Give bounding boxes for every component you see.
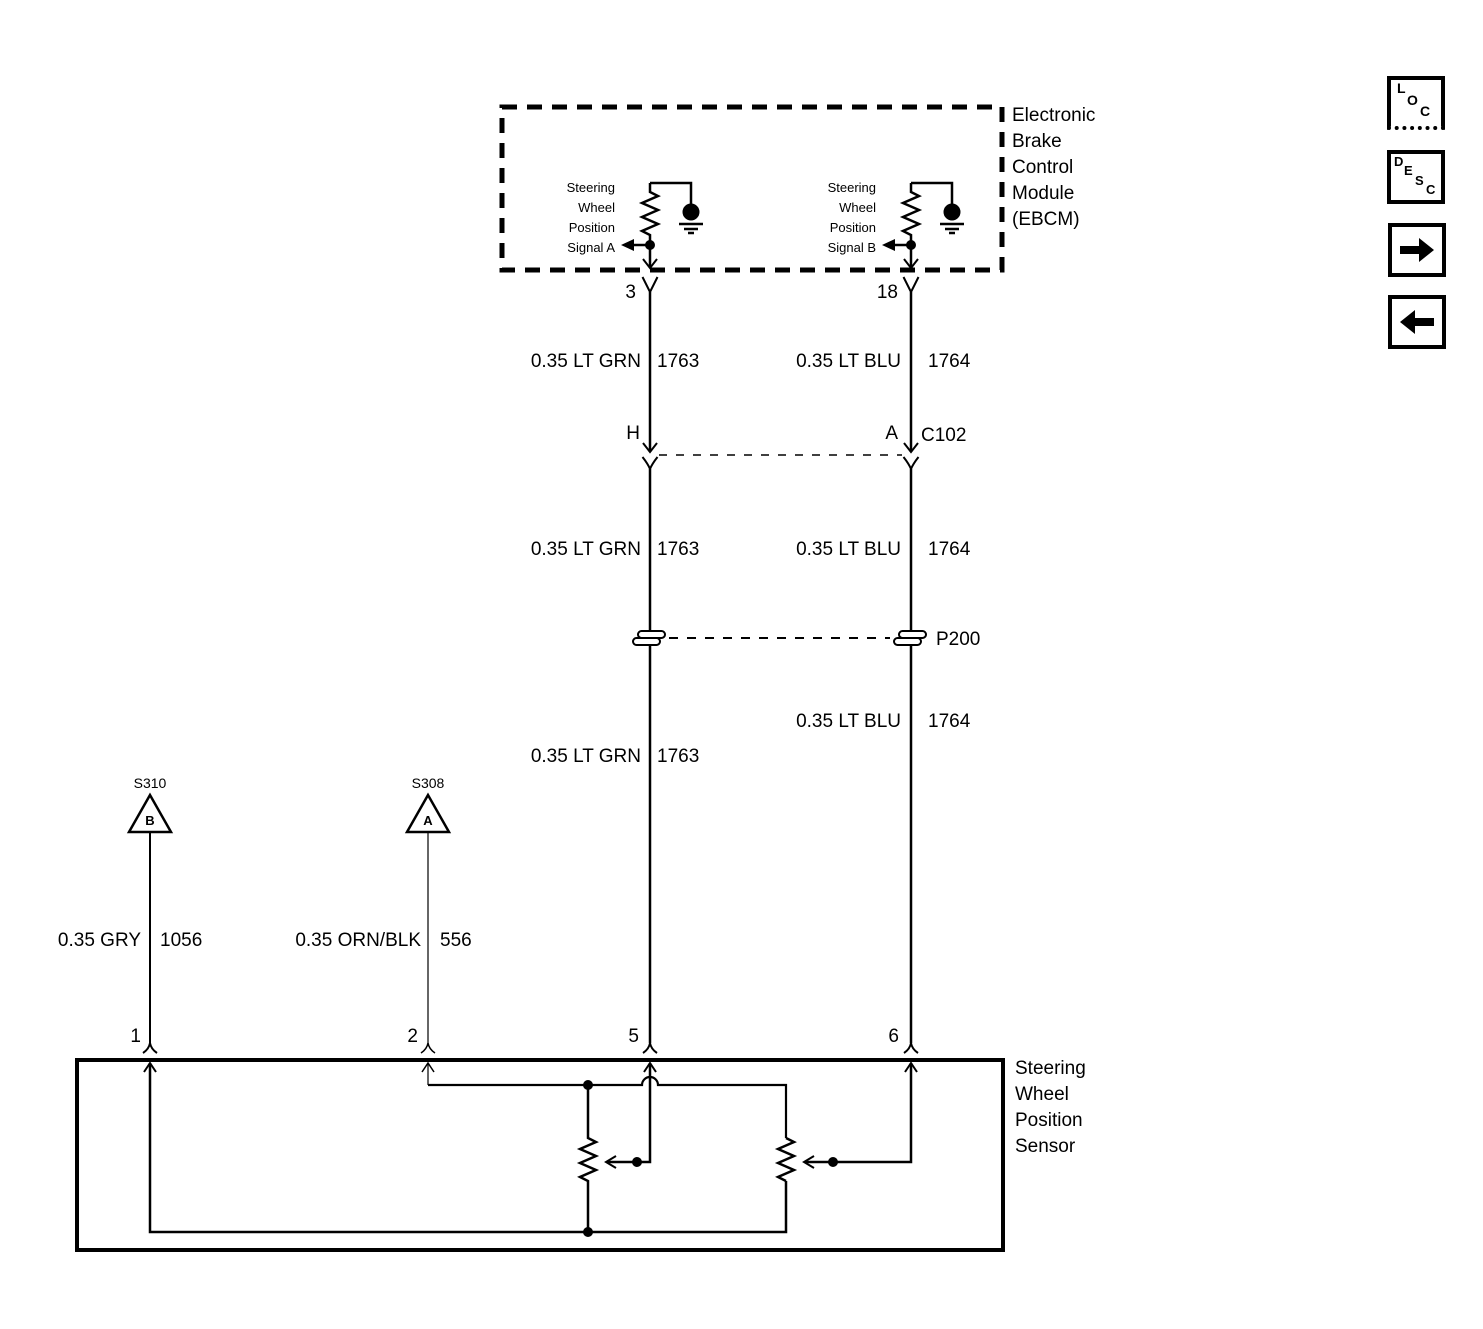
ground-icon — [679, 224, 703, 233]
right-arrow-icon — [1392, 227, 1442, 273]
sensor-box — [77, 1060, 1003, 1250]
junction-dot — [829, 1158, 838, 1167]
female-pin-fork — [643, 277, 658, 292]
ebcm-signal-a-circuit — [621, 183, 703, 268]
left-arrow-icon — [1392, 299, 1442, 345]
wire-color-label: 0.35 LT GRN — [531, 537, 641, 563]
ground-icon — [683, 204, 699, 220]
loc-letter: C — [1420, 103, 1430, 119]
wire-circuit-label: 1763 — [657, 349, 699, 375]
junction-dot — [584, 1081, 593, 1090]
ebcm-signal-b-label: Steering Wheel Position Signal B — [763, 178, 876, 258]
wire-color-label: 0.35 LT BLU — [796, 709, 901, 735]
ebcm-signal-b-circuit — [882, 183, 964, 268]
splice-s310-label: S310 — [134, 775, 167, 791]
prev-button[interactable] — [1388, 295, 1446, 349]
wire-lt-grn-1763 — [633, 277, 665, 1053]
desc-letter: E — [1404, 163, 1413, 178]
wire-color-label: 0.35 GRY — [58, 928, 141, 954]
female-pin-fork — [904, 277, 919, 292]
loc-letter: L — [1397, 80, 1406, 96]
wire-color-label: 0.35 ORN/BLK — [295, 928, 421, 954]
ebcm-pin-18: 18 — [877, 280, 898, 306]
wire-circuit-label: 1056 — [160, 928, 202, 954]
wiring-diagram — [0, 0, 1483, 1329]
ebcm-signal-a-label: Steering Wheel Position Signal A — [502, 178, 615, 258]
desc-letter: D — [1394, 154, 1403, 169]
female-pin-fork — [643, 1043, 657, 1053]
ebcm-pin-3: 3 — [625, 280, 636, 306]
junction-dot — [584, 1228, 593, 1237]
female-pin-fork — [643, 457, 658, 469]
ebcm-title: Electronic Brake Control Module (EBCM) — [1012, 103, 1095, 233]
wire-circuit-label: 1764 — [928, 537, 970, 563]
ground-icon — [940, 224, 964, 233]
signal-b-arrow — [882, 239, 895, 251]
sensor-pin-1: 1 — [130, 1024, 141, 1050]
wire-color-label: 0.35 LT BLU — [796, 537, 901, 563]
wire-circuit-label: 1764 — [928, 709, 970, 735]
p200-label: P200 — [936, 627, 980, 653]
sensor-internal-circuit — [144, 1063, 917, 1237]
c102-label: C102 — [921, 423, 966, 449]
sensor-pin-2: 2 — [407, 1024, 418, 1050]
junction-dot — [633, 1158, 642, 1167]
c102-pin-a: A — [885, 421, 898, 447]
sensor-title: Steering Wheel Position Sensor — [1015, 1056, 1086, 1160]
female-pin-fork — [421, 1043, 435, 1053]
desc-letter: C — [1426, 182, 1435, 197]
resistor — [903, 183, 919, 245]
splice-s308-letter: A — [423, 811, 432, 831]
grommet-p200-right — [894, 631, 926, 645]
resistor — [580, 1085, 596, 1232]
wire-circuit-label: 1764 — [928, 349, 970, 375]
wire-color-label: 0.35 LT GRN — [531, 349, 641, 375]
next-button[interactable] — [1388, 223, 1446, 277]
resistor — [642, 183, 658, 245]
wire-lt-blu-1764 — [894, 277, 926, 1053]
sensor-pin-5: 5 — [628, 1024, 639, 1050]
wiring-diagram-page: Electronic Brake Control Module (EBCM) S… — [0, 0, 1483, 1329]
wire-color-label: 0.35 LT GRN — [531, 744, 641, 770]
loc-letter: O — [1407, 92, 1418, 108]
splice-s310-branch — [129, 795, 171, 1053]
desc-button[interactable]: D E S C — [1387, 150, 1445, 204]
splice-s308-branch — [407, 795, 449, 1053]
resistor — [778, 1138, 794, 1181]
female-pin-fork — [904, 1043, 918, 1053]
wire-circuit-label: 1763 — [657, 537, 699, 563]
grommet-p200-left — [633, 631, 665, 645]
signal-a-arrow — [621, 239, 634, 251]
splice-s310-letter: B — [145, 811, 154, 831]
female-pin-fork — [143, 1043, 157, 1053]
ground-icon — [944, 204, 960, 220]
wire-color-label: 0.35 LT BLU — [796, 349, 901, 375]
splice-s308-label: S308 — [412, 775, 445, 791]
wire-hop — [428, 1077, 786, 1138]
desc-letter: S — [1415, 173, 1424, 188]
wire-circuit-label: 1763 — [657, 744, 699, 770]
female-pin-fork — [904, 457, 919, 469]
loc-button[interactable]: L O C — [1387, 76, 1445, 130]
c102-pin-h: H — [626, 421, 640, 447]
sensor-pin-6: 6 — [888, 1024, 899, 1050]
wire-circuit-label: 556 — [440, 928, 472, 954]
